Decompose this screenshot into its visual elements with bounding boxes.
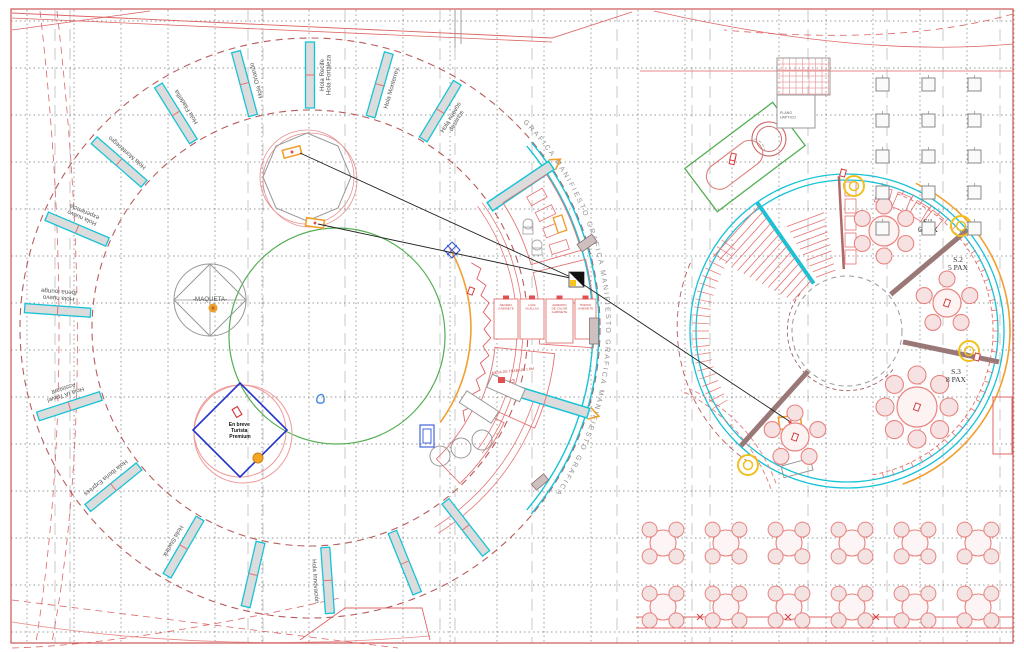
sheet-arc xyxy=(654,11,1013,47)
chair xyxy=(984,586,999,601)
appliance-label: NEVERAGABINETE xyxy=(498,303,514,311)
photocall-octagon xyxy=(260,130,357,228)
chair xyxy=(908,430,926,448)
fire-extinguisher-icon xyxy=(232,407,242,418)
hatch-tick xyxy=(693,315,710,317)
tag-marker-box xyxy=(553,215,567,233)
cafe-table xyxy=(705,522,747,564)
tag-marker xyxy=(282,146,301,158)
chair xyxy=(642,613,657,628)
chair xyxy=(953,314,969,330)
chair xyxy=(921,586,936,601)
fire-extinguisher-box xyxy=(730,153,737,161)
stand-mark xyxy=(57,306,58,315)
column xyxy=(968,78,981,91)
lift-car xyxy=(423,429,431,443)
chair xyxy=(642,522,657,537)
ramp-tread xyxy=(719,211,763,260)
speaker-ring xyxy=(738,455,758,475)
annotations xyxy=(300,153,789,421)
chair xyxy=(831,586,846,601)
stand-label: Hola nuevoIberia lounge xyxy=(40,287,77,303)
kitchen-partition xyxy=(535,205,556,222)
work-table-label: MESA DE TRABAJO 1.8M xyxy=(492,367,535,375)
chair xyxy=(940,398,958,416)
bench xyxy=(531,474,548,490)
chair xyxy=(858,586,873,601)
exhibit-stand: Hola Filadelfia xyxy=(155,77,207,144)
seat-tick xyxy=(945,440,949,445)
column xyxy=(876,78,889,91)
chair xyxy=(876,398,894,416)
chair xyxy=(894,549,909,564)
seat-tick xyxy=(952,432,956,436)
column xyxy=(922,114,935,127)
chair xyxy=(925,314,941,330)
kitchen-partition-box xyxy=(549,239,569,254)
chair xyxy=(831,549,846,564)
maqueta-symbol: -MAQUETA- xyxy=(174,264,246,336)
seat-tick xyxy=(945,218,949,223)
column xyxy=(876,114,889,127)
core-circle xyxy=(792,276,902,386)
hatch-tick xyxy=(694,353,711,356)
fire-extinguisher-box xyxy=(840,169,847,177)
radial-wall xyxy=(757,202,814,283)
chair xyxy=(732,549,747,564)
chair xyxy=(732,522,747,537)
hatch-tick xyxy=(694,307,711,310)
chair xyxy=(885,421,903,439)
chair xyxy=(854,236,870,252)
cafe-table xyxy=(642,586,684,628)
banquet-table xyxy=(916,271,978,330)
kitchen-partition xyxy=(527,188,548,206)
chair xyxy=(898,236,914,252)
chair xyxy=(669,586,684,601)
door-leaf xyxy=(590,318,599,344)
chair xyxy=(831,613,846,628)
ramp-tread xyxy=(793,280,812,301)
cafe-table xyxy=(957,522,999,564)
speaker-ring xyxy=(844,176,864,196)
exhibit-stand: Hola RecifeHola Fortaleza xyxy=(306,42,333,108)
cafe-table xyxy=(705,586,747,628)
sheet-arc xyxy=(36,11,59,642)
chair xyxy=(705,549,720,564)
fire-extinguisher-icon xyxy=(467,287,474,295)
left-pavilion: GRAFICA MANIFIESTO GRAFICA MANIFIESTO GR… xyxy=(20,38,611,618)
chair xyxy=(858,549,873,564)
chair xyxy=(854,211,870,227)
entrance-wall-body xyxy=(516,387,590,418)
hall-wall-circle xyxy=(690,174,1004,488)
exhibit-stand xyxy=(388,530,421,595)
cafe-table xyxy=(768,586,810,628)
chair xyxy=(894,586,909,601)
octagon-wall xyxy=(263,133,351,221)
chair-sketch xyxy=(532,240,542,250)
ramp-tread xyxy=(787,275,808,298)
cafe-table xyxy=(831,586,873,628)
hatch-lines xyxy=(777,58,830,95)
highlight-marker-yellow xyxy=(570,280,576,286)
hatch-tick xyxy=(692,338,709,339)
column xyxy=(968,150,981,163)
banquet-table xyxy=(764,405,826,464)
sheet-arc xyxy=(52,11,77,642)
column xyxy=(968,186,981,199)
blue-clip-marker xyxy=(317,394,324,403)
cafe-table xyxy=(894,586,936,628)
chair xyxy=(957,549,972,564)
speaker-ring-inner xyxy=(850,182,859,191)
gear-icon-center xyxy=(211,306,214,309)
exhibit-stand: Hola IA TravelAssistant xyxy=(31,375,102,421)
chair xyxy=(962,288,978,304)
ramp-tread xyxy=(810,257,833,266)
speaker-ring-inner xyxy=(744,461,753,470)
ramp-tread xyxy=(781,269,804,295)
chair xyxy=(939,271,955,287)
exhibit-stand: Hola Iberia Express xyxy=(78,454,142,511)
work-table xyxy=(487,374,526,401)
column xyxy=(876,186,889,199)
appliance-label: ARMARIODE CALORGABINETE xyxy=(552,303,569,314)
cafe-table xyxy=(894,522,936,564)
seat-tick xyxy=(959,425,964,429)
tag-marker xyxy=(306,218,325,228)
ramp-tread xyxy=(816,270,835,277)
fire-extinguisher-icon xyxy=(840,169,847,177)
chair xyxy=(642,586,657,601)
chair xyxy=(921,549,936,564)
cafe-table xyxy=(642,522,684,564)
chair xyxy=(801,448,817,464)
blue-symbol xyxy=(444,242,460,258)
chair xyxy=(957,522,972,537)
ramp-tread xyxy=(813,264,834,272)
chair xyxy=(876,248,892,264)
appliance-tag xyxy=(503,296,509,300)
chair xyxy=(732,613,747,628)
chair xyxy=(858,613,873,628)
chair xyxy=(957,613,972,628)
chair xyxy=(921,613,936,628)
chair xyxy=(876,198,892,214)
sheet-arc xyxy=(12,598,340,648)
appliance-tag xyxy=(557,296,563,300)
fire-extinguisher-box xyxy=(974,353,981,361)
cafe-table xyxy=(768,522,810,564)
ramp-tread xyxy=(756,246,787,281)
fold-mark xyxy=(12,12,632,38)
chair xyxy=(885,375,903,393)
ramp-tread xyxy=(787,213,824,227)
ramp-tread xyxy=(738,229,776,271)
floor-plan-canvas[interactable]: GRAFICA MANIFIESTO GRAFICA MANIFIESTO GR… xyxy=(0,0,1024,652)
ramp-tread xyxy=(713,206,759,257)
kitchen-partition-box xyxy=(527,188,548,206)
cafe-table xyxy=(957,586,999,628)
side-room xyxy=(993,397,1012,454)
appliance-label: HORNOGABINETE xyxy=(578,303,594,311)
stool xyxy=(451,438,471,458)
chair xyxy=(894,522,909,537)
chair xyxy=(984,613,999,628)
exhibit-stand: Hola nuevosdestinos xyxy=(419,80,476,151)
column xyxy=(968,222,981,235)
chair xyxy=(984,549,999,564)
stool xyxy=(472,430,492,450)
chair xyxy=(768,586,783,601)
exhibit-stand: Hola Monterrey xyxy=(366,52,404,121)
chair xyxy=(831,522,846,537)
chair xyxy=(768,522,783,537)
chair xyxy=(984,522,999,537)
lift-shaft xyxy=(420,425,434,447)
maqueta-label: -MAQUETA- xyxy=(193,296,227,303)
chair xyxy=(898,211,914,227)
ramp-tread xyxy=(762,252,791,285)
fold-mark xyxy=(12,18,552,42)
ramp-tread xyxy=(744,234,780,273)
column xyxy=(922,150,935,163)
chair xyxy=(931,421,949,439)
exhibit-stand xyxy=(442,499,490,557)
queue-arc xyxy=(681,391,771,490)
exhibit-stand: Hola nuevoIberia lounge xyxy=(24,286,92,318)
qty-label: x3 xyxy=(509,379,515,385)
locker-box xyxy=(845,250,856,264)
exhibit-stand: Hola Montenegro xyxy=(91,128,154,187)
chair xyxy=(773,448,789,464)
chair xyxy=(795,549,810,564)
hatch-tick xyxy=(692,323,709,324)
chair xyxy=(705,586,720,601)
ramp-tread xyxy=(797,232,828,244)
column xyxy=(922,222,935,235)
chair xyxy=(795,613,810,628)
column xyxy=(922,186,935,199)
chair xyxy=(768,613,783,628)
ramp-tread xyxy=(793,226,826,238)
hatch-tick xyxy=(697,291,713,295)
column xyxy=(922,78,935,91)
hall-details xyxy=(692,153,999,479)
right-pavilion: S.16 PAXS.25 PAXS.38 PAX xyxy=(677,102,1012,489)
chair xyxy=(787,405,803,421)
appliance-tag xyxy=(529,296,535,300)
chair xyxy=(705,522,720,537)
site-furniture: PLANO HAPTICO xyxy=(642,58,999,628)
chair xyxy=(642,549,657,564)
chair xyxy=(795,522,810,537)
work-table xyxy=(459,391,498,423)
chair xyxy=(921,522,936,537)
kitchen-partition-box xyxy=(535,205,556,222)
qty-marker xyxy=(498,377,505,383)
exhibit-stand xyxy=(241,541,265,607)
green-stage-circle xyxy=(229,228,445,444)
entrance-wall xyxy=(516,386,601,422)
kitchen-furniture: MESA DE TRABAJO 1.8M x3 xyxy=(420,215,599,490)
sheet-arc xyxy=(724,14,1013,35)
coming-soon-zone: En breve Turista Premium xyxy=(193,383,324,483)
radial-wall xyxy=(839,176,844,269)
chair xyxy=(764,422,780,438)
section-label: S.38 PAX xyxy=(946,367,967,384)
column xyxy=(876,150,889,163)
chair xyxy=(732,586,747,601)
orange-dot-marker xyxy=(253,453,263,463)
appliance-tag xyxy=(583,296,589,300)
fire-extinguisher-icon xyxy=(730,153,737,161)
structural-columns xyxy=(876,75,981,235)
chair xyxy=(957,586,972,601)
section-label: S.25 PAX xyxy=(948,255,969,272)
chair xyxy=(810,422,826,438)
stand-label: Hola Innovación xyxy=(310,559,320,604)
seat-tick xyxy=(937,446,941,451)
haptic-plan-zone: PLANO HAPTICO xyxy=(777,58,830,128)
chair xyxy=(916,288,932,304)
chair xyxy=(795,586,810,601)
fire-extinguisher-icon xyxy=(974,353,981,361)
chair xyxy=(908,366,926,384)
chair xyxy=(705,613,720,628)
stand-label: Hola RecifeHola Fortaleza xyxy=(319,54,333,95)
leader-line xyxy=(318,224,575,279)
ramp-tread xyxy=(800,238,829,249)
fire-extinguisher-box xyxy=(232,407,242,418)
chair xyxy=(669,613,684,628)
chair xyxy=(669,522,684,537)
column xyxy=(876,222,889,235)
kitchen-partition xyxy=(549,239,569,254)
stand-mark xyxy=(323,580,332,581)
chair xyxy=(858,522,873,537)
coming-soon-label: En breve Turista Premium xyxy=(229,422,252,440)
exhibit-stand: Hola Starlink xyxy=(153,511,204,578)
locker-box xyxy=(845,199,856,213)
manifesto-text-path xyxy=(484,122,606,567)
chair xyxy=(669,549,684,564)
highlight-marker[interactable] xyxy=(569,272,584,287)
hatch-tick xyxy=(693,345,710,347)
partition-wall xyxy=(903,342,999,362)
chair xyxy=(894,613,909,628)
seat-tick xyxy=(952,225,956,229)
column xyxy=(968,114,981,127)
chair xyxy=(768,549,783,564)
cafe-table xyxy=(831,522,873,564)
ramp-tread xyxy=(750,240,783,277)
